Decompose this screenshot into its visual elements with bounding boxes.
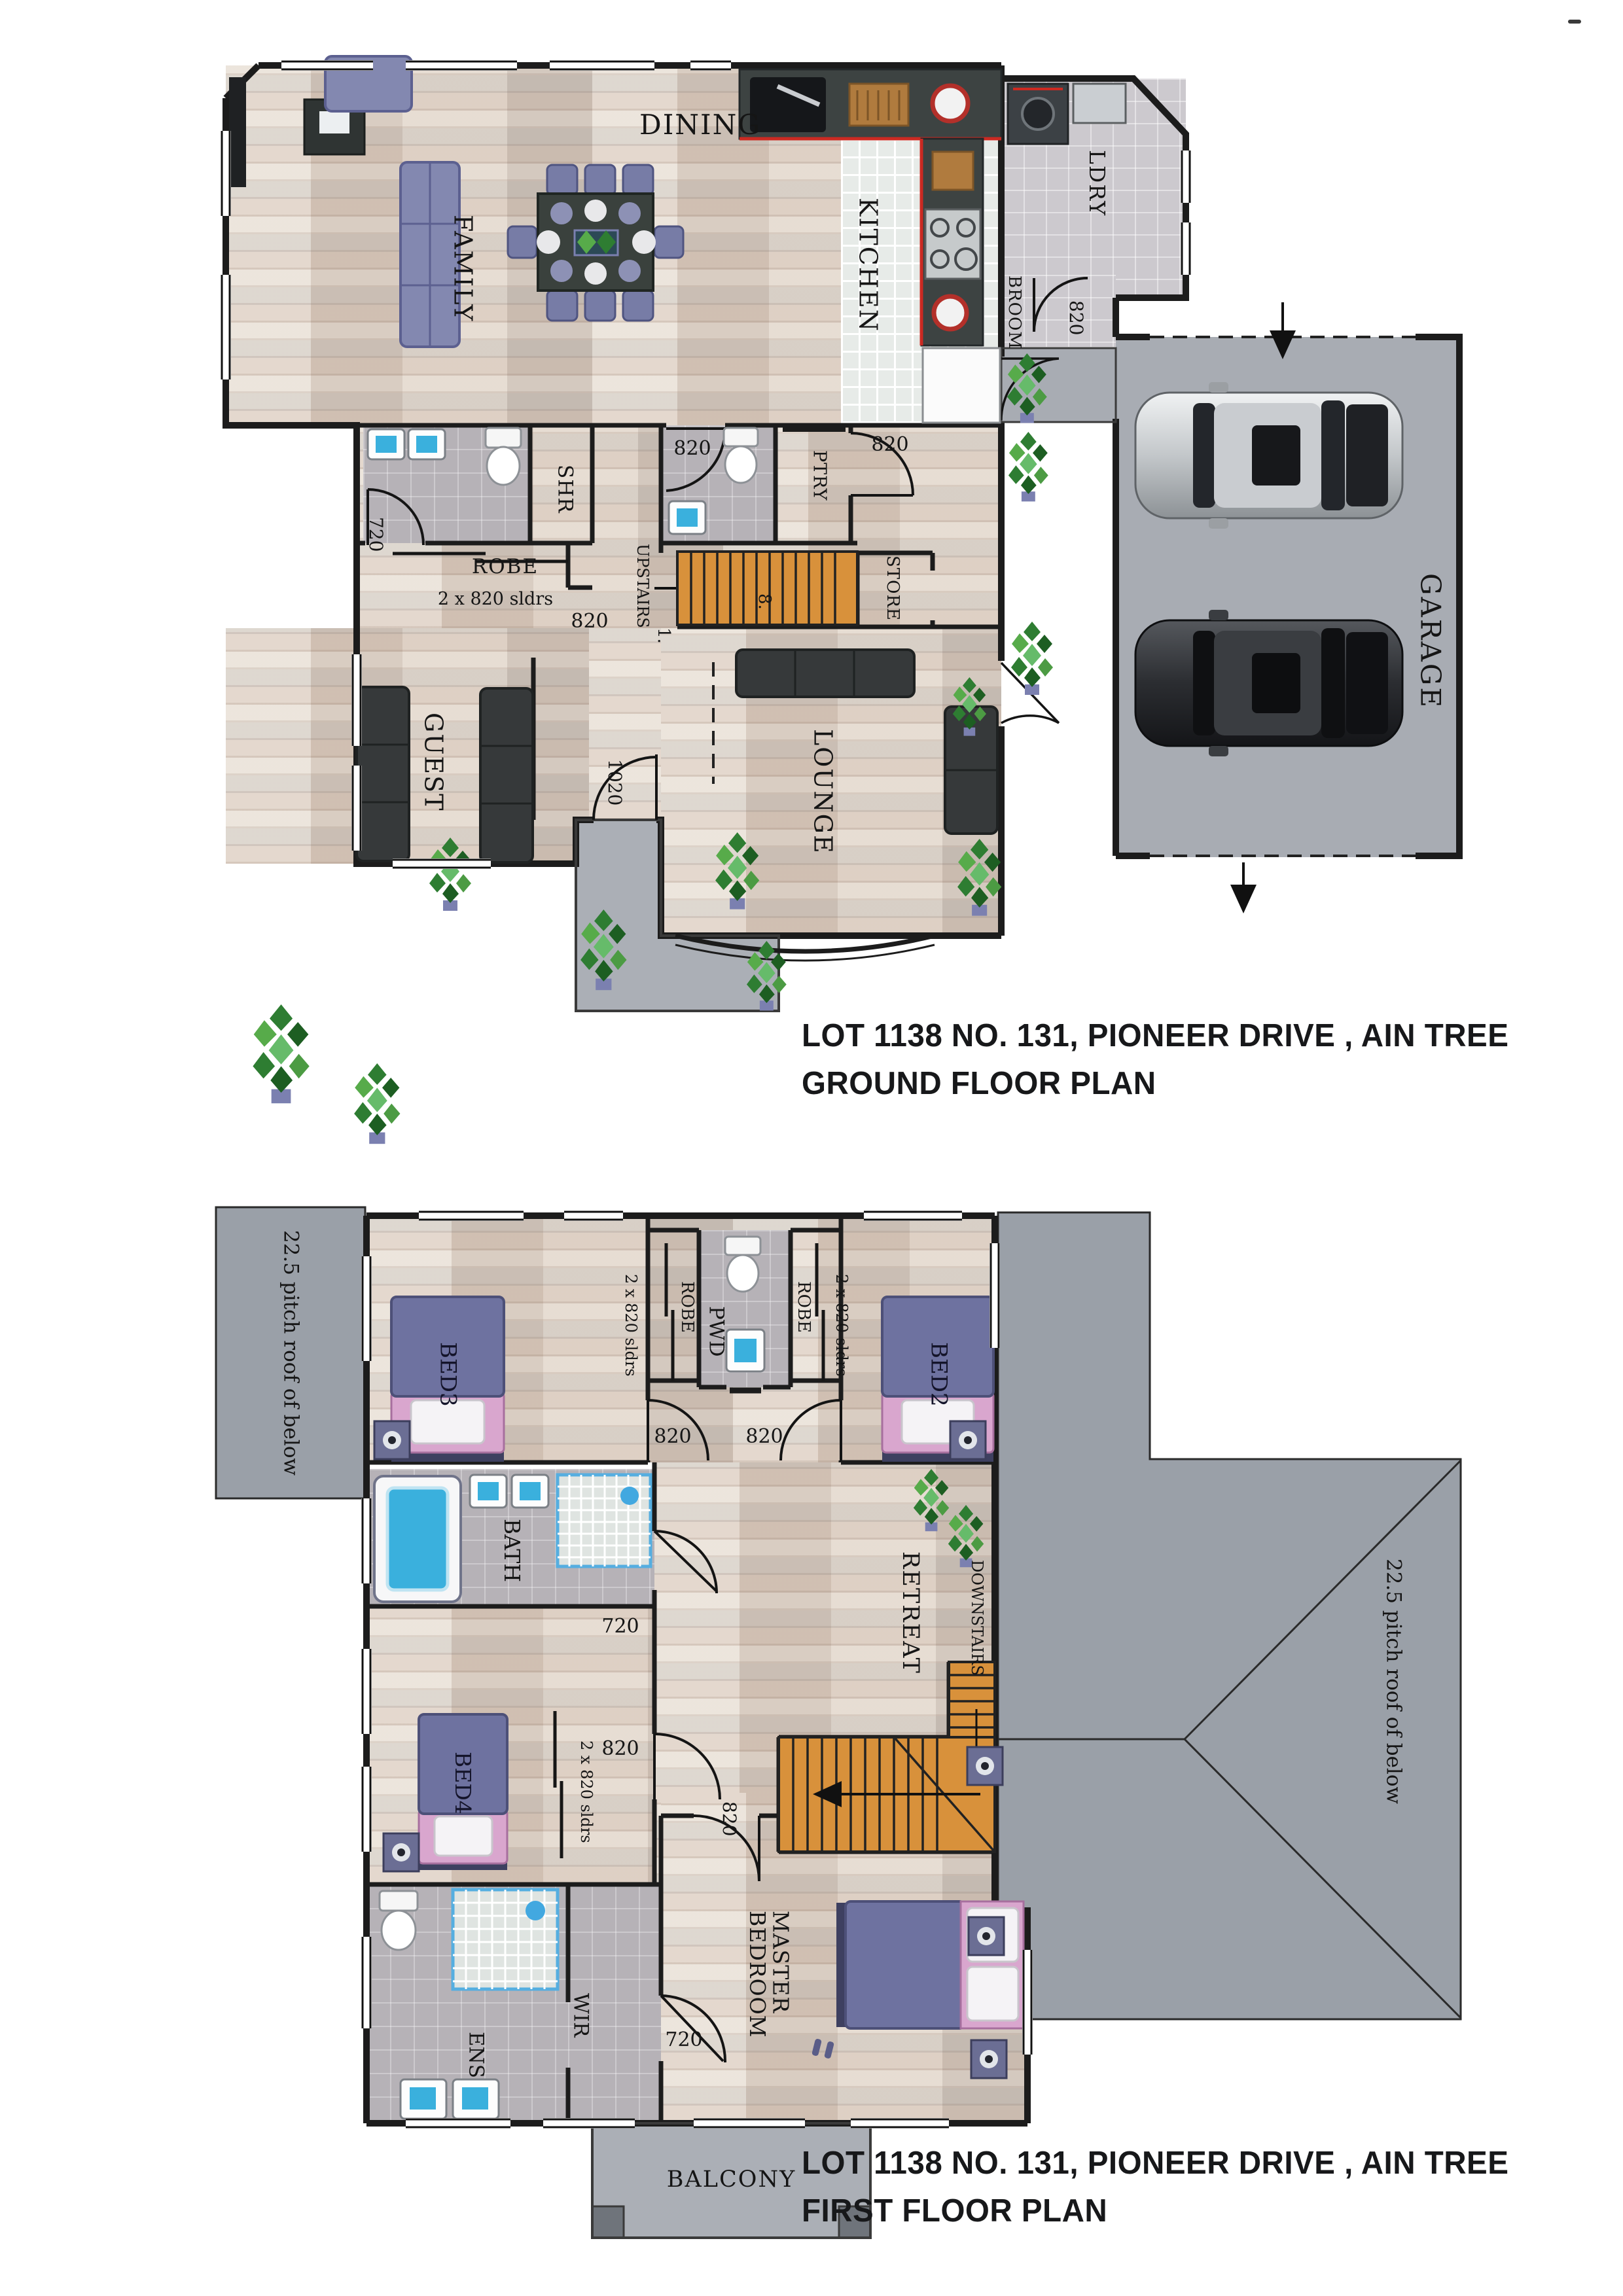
label-robe-bed2: ROBE xyxy=(792,1264,815,1349)
label-robe-bed3: ROBE xyxy=(675,1264,699,1349)
label-master-door-820: 820 xyxy=(717,1792,741,1846)
label-downstairs: DOWNSTAIRS xyxy=(965,1528,988,1708)
label-pwd: PWD xyxy=(703,1292,729,1371)
gf-bath-fixtures xyxy=(368,428,521,485)
label-shr: SHR xyxy=(551,451,579,527)
label-dining: DINING xyxy=(615,108,785,142)
label-broom-door-820: 820 xyxy=(1064,293,1088,343)
label-ldry: LDRY xyxy=(1081,131,1113,236)
ff-caption-address: LOT 1138 NO. 131, PIONEER DRIVE , AIN TR… xyxy=(802,2145,1508,2181)
plan-linework xyxy=(0,0,1623,2296)
car-silver xyxy=(1135,382,1402,529)
label-roof-left: 22.5 pitch roof of below xyxy=(270,1216,311,1491)
label-bed3-door-820: 820 xyxy=(647,1425,699,1449)
label-broom: BROOM xyxy=(1001,274,1027,351)
ff-pwd-fixtures xyxy=(725,1237,764,1371)
label-ens: ENS xyxy=(462,2015,490,2094)
label-store: STORE xyxy=(880,552,906,625)
label-roof-right: 22.5 pitch roof of below xyxy=(1373,1525,1414,1839)
label-garage: GARAGE xyxy=(1412,546,1449,736)
label-bed4: BED4 xyxy=(448,1734,478,1832)
gf-sofas xyxy=(357,650,997,862)
label-bath-ff: BATH xyxy=(497,1505,526,1597)
label-retreat: RETREAT xyxy=(894,1534,925,1691)
label-robe-gf: ROBE xyxy=(466,555,544,580)
label-family: FAMILY xyxy=(446,193,479,344)
label-sliders-bed3: 2 x 820 sldrs xyxy=(619,1260,641,1390)
label-bed2-door-820: 820 xyxy=(738,1425,791,1449)
label-sliders-bed4: 2 x 820 sldrs xyxy=(575,1726,597,1857)
label-stair-1: 1. xyxy=(653,620,674,650)
floor-plan-sheet: DINING FAMILY KITCHEN LDRY BROOM 820 GAR… xyxy=(0,0,1623,2296)
label-wir-door-720: 720 xyxy=(658,2028,710,2052)
label-ptry-door-820: 820 xyxy=(863,433,918,457)
label-master-bedroom: MASTER BEDROOM xyxy=(740,1911,798,2086)
label-bed3: BED3 xyxy=(432,1322,463,1426)
label-stair-8: 8. xyxy=(754,586,775,616)
label-upstairs: UPSTAIRS xyxy=(630,542,654,630)
label-bed2: BED2 xyxy=(923,1322,954,1426)
label-bed4-door-820: 820 xyxy=(594,1737,647,1761)
label-lounge: LOUNGE xyxy=(806,723,839,860)
label-bath-door-720: 720 xyxy=(364,507,387,562)
label-powder-door-820: 820 xyxy=(665,437,720,461)
label-kitchen: KITCHEN xyxy=(851,183,885,347)
dining-set xyxy=(508,165,683,321)
label-guest: GUEST xyxy=(418,707,449,818)
corner-mark xyxy=(1568,20,1581,24)
gf-caption-title: GROUND FLOOR PLAN xyxy=(802,1065,1156,1102)
gf-caption-address: LOT 1138 NO. 131, PIONEER DRIVE , AIN TR… xyxy=(802,1017,1508,1054)
car-dark xyxy=(1135,610,1402,756)
label-ptry: PTRY xyxy=(806,440,832,512)
label-hall-door-820: 820 xyxy=(562,610,618,633)
label-bath-door-720: 720 xyxy=(594,1615,647,1638)
label-balcony: BALCONY xyxy=(661,2166,802,2195)
ff-caption-title: FIRST FLOOR PLAN xyxy=(802,2193,1107,2229)
family-furniture xyxy=(229,56,459,347)
ff-stairs xyxy=(779,1662,995,1852)
label-sliders-gf: 2 x 820 sldrs xyxy=(433,588,558,611)
label-wir: WIR xyxy=(567,1976,594,2055)
label-sliders-bed2: 2 x 820 sldrs xyxy=(830,1260,852,1390)
label-entry-1020: 1020 xyxy=(602,751,627,813)
